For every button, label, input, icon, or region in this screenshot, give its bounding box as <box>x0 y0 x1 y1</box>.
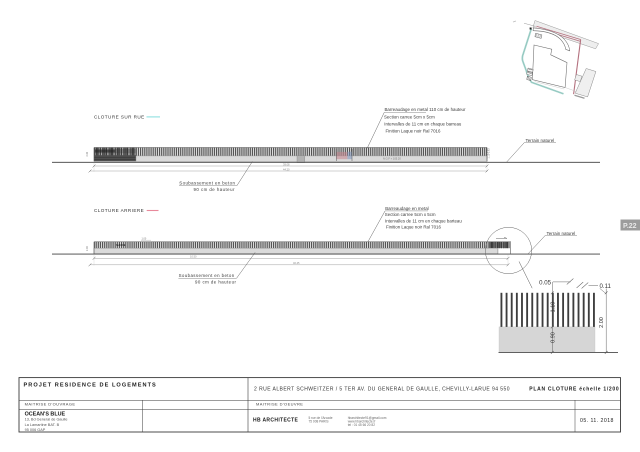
svg-text:44.20: 44.20 <box>283 167 290 171</box>
svg-text:P.22: P.22 <box>623 223 637 230</box>
svg-text:MAITRISE D'OEUVRE: MAITRISE D'OEUVRE <box>256 402 303 407</box>
svg-text:0.90: 0.90 <box>550 332 556 343</box>
svg-text:Soubassement en beton: Soubassement en beton <box>179 181 235 186</box>
svg-text:HB ARCHITECTE: HB ARCHITECTE <box>253 417 299 423</box>
svg-text:2.00: 2.00 <box>86 246 89 251</box>
svg-text:90 cm de hauteur: 90 cm de hauteur <box>194 187 235 192</box>
svg-text:OCEAN'S BLUE: OCEAN'S BLUE <box>25 411 66 417</box>
svg-text:1.10 0.90: 1.10 0.90 <box>488 148 491 159</box>
svg-text:39.08: 39.08 <box>283 162 290 166</box>
svg-text:La Lamartine BAT. B: La Lamartine BAT. B <box>25 423 60 427</box>
svg-text:Intervalles de 11 cm en chaque: Intervalles de 11 cm en chaque barreau <box>384 122 462 127</box>
svg-text:95 006 GAP: 95 006 GAP <box>25 428 46 432</box>
svg-text:2.00: 2.00 <box>599 317 605 328</box>
svg-text:Section carree 5cm x 5cm: Section carree 5cm x 5cm <box>384 114 435 119</box>
svg-text:Barreaudage en metal 110 cm de: Barreaudage en metal 110 cm de hauteur <box>385 107 466 112</box>
svg-text:N.G.F + 105.20: N.G.F + 105.20 <box>383 156 401 160</box>
svg-text:46.45: 46.45 <box>293 261 300 265</box>
svg-text:Terrain naturel: Terrain naturel <box>547 231 576 236</box>
svg-text:Soubassement en beton: Soubassement en beton <box>179 273 235 278</box>
svg-text:05. 11. 2018: 05. 11. 2018 <box>580 418 614 424</box>
svg-text:MAITRISE D'OUVRAGE: MAITRISE D'OUVRAGE <box>25 402 76 407</box>
svg-text:PLAN CLOTURE échelle 1/200: PLAN CLOTURE échelle 1/200 <box>529 387 619 393</box>
svg-text:2.00: 2.00 <box>86 151 89 156</box>
svg-text:CLOTURE ARRIERE: CLOTURE ARRIERE <box>94 208 144 213</box>
svg-text:CLOTURE SUR RUE: CLOTURE SUR RUE <box>94 115 145 120</box>
svg-text:Barreaudage en metal: Barreaudage en metal <box>385 206 428 211</box>
svg-text:0.05: 0.05 <box>539 280 551 287</box>
svg-text:90 cm de hauteur: 90 cm de hauteur <box>195 280 236 285</box>
svg-text:75 008 PARIS: 75 008 PARIS <box>309 420 329 424</box>
svg-text:Finition Laque noir Ral 7016: Finition Laque noir Ral 7016 <box>386 225 441 230</box>
svg-text:PROJET RESIDENCE DE LOGEMENTS: PROJET RESIDENCE DE LOGEMENTS <box>24 383 157 389</box>
svg-text:1.10: 1.10 <box>550 302 556 313</box>
svg-text:Finition Laque noir Ral 7016: Finition Laque noir Ral 7016 <box>386 129 441 134</box>
svg-text:2 RUE ALBERT SCHWEITZER / 5 TE: 2 RUE ALBERT SCHWEITZER / 5 TER AV. DU G… <box>254 387 510 393</box>
svg-text:Intervalles de 11 cm en chaque: Intervalles de 11 cm en chaque barteau <box>385 218 462 223</box>
svg-text:tel : 01 45 66 20 82: tel : 01 45 66 20 82 <box>348 423 376 427</box>
svg-text:Terrain naturel: Terrain naturel <box>526 138 555 143</box>
svg-text:MAIRIE: MAIRIE <box>116 243 126 247</box>
svg-text:10.50: 10.50 <box>190 255 197 259</box>
svg-text:13, Bd General de Gaulle: 13, Bd General de Gaulle <box>25 418 68 422</box>
svg-text:Section carree 5cm x 5cm: Section carree 5cm x 5cm <box>385 212 436 217</box>
svg-text:0.11: 0.11 <box>600 283 612 290</box>
